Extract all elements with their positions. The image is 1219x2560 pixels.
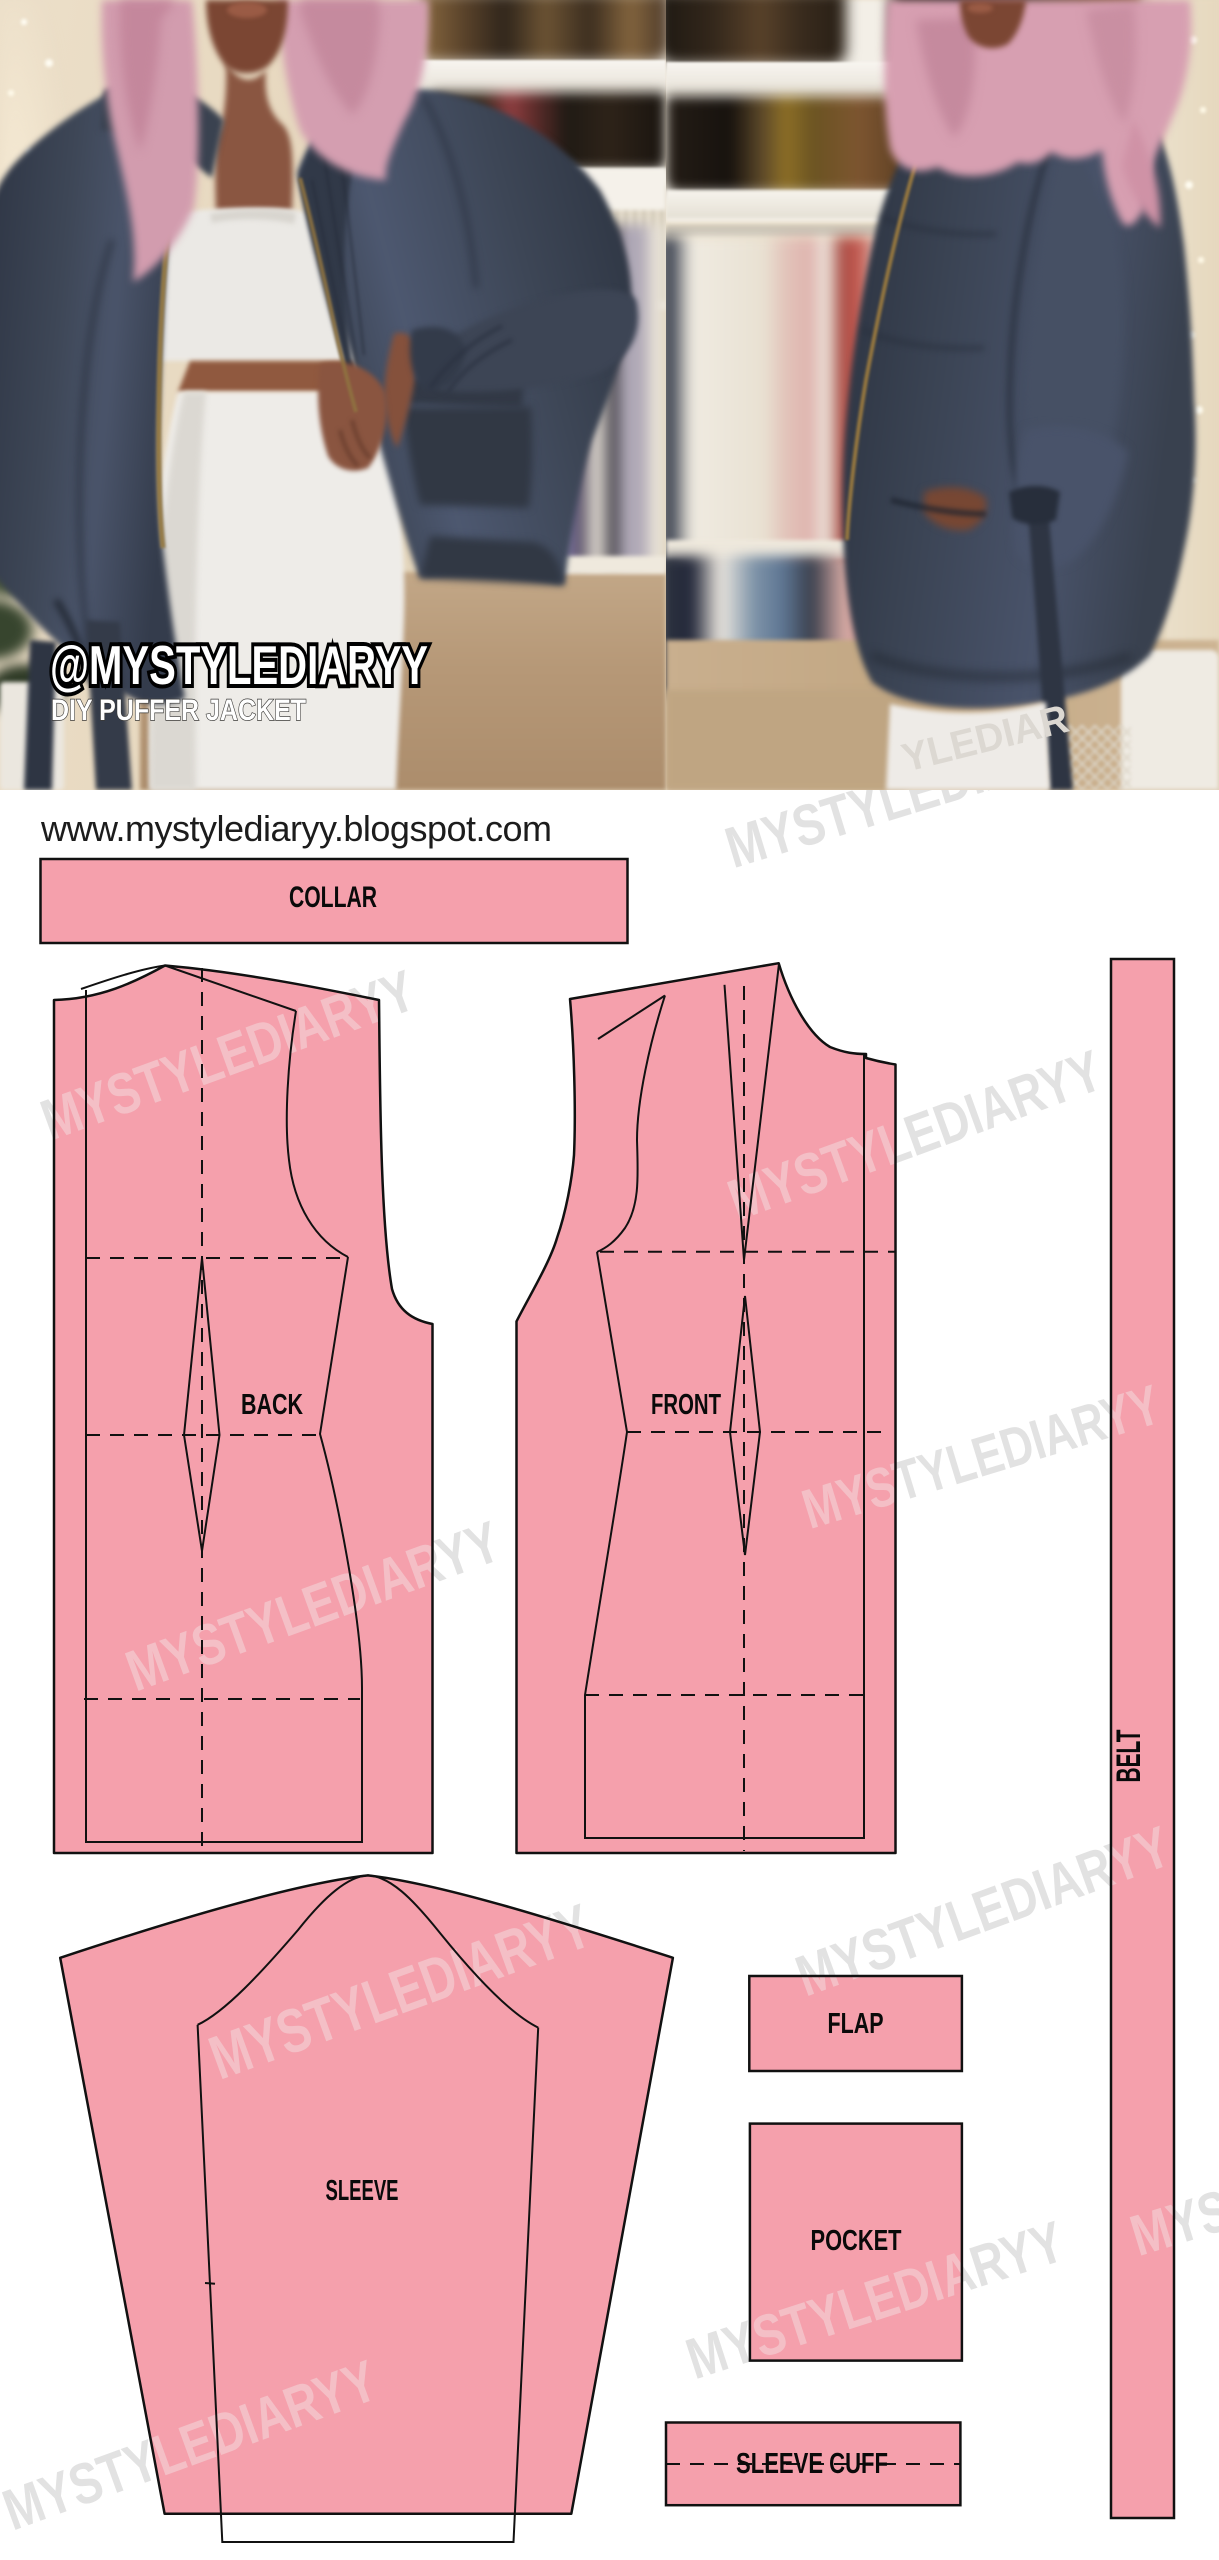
svg-text:SLEEVE CUFF: SLEEVE CUFF bbox=[736, 2448, 888, 2480]
svg-text:@MYSTYLEDIARYY: @MYSTYLEDIARYY bbox=[50, 634, 428, 696]
svg-text:BELT: BELT bbox=[1110, 1729, 1148, 1782]
svg-text:SLEEVE: SLEEVE bbox=[326, 2175, 399, 2207]
svg-text:DIY PUFFER JACKET: DIY PUFFER JACKET bbox=[51, 694, 306, 727]
svg-text:POCKET: POCKET bbox=[811, 2225, 902, 2257]
svg-text:FLAP: FLAP bbox=[828, 2008, 884, 2040]
svg-text:BACK: BACK bbox=[241, 1389, 303, 1421]
svg-text:FRONT: FRONT bbox=[651, 1389, 721, 1421]
svg-text:COLLAR: COLLAR bbox=[289, 881, 377, 914]
svg-text:www.mystylediaryy.blogspot.com: www.mystylediaryy.blogspot.com bbox=[40, 808, 552, 849]
